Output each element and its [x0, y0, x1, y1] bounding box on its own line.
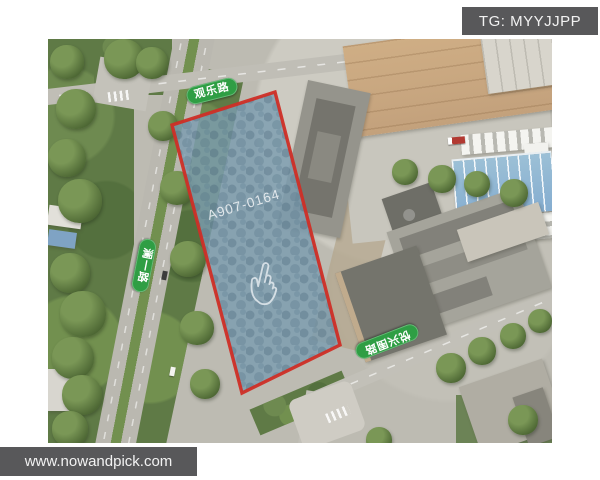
watermark-bar: www.nowandpick.com — [0, 447, 197, 476]
telegram-badge: TG: MYYJJPP — [462, 7, 598, 35]
telegram-badge-text: TG: MYYJJPP — [479, 13, 581, 30]
land-parcel[interactable] — [172, 92, 340, 393]
parcel-overlay: A907-0164 — [48, 39, 552, 443]
screenshot-frame: A907-0164 观乐路 澜一路 悦兴围路 TG: MYYJJPP www.n… — [0, 0, 600, 480]
watermark-text: www.nowandpick.com — [25, 453, 173, 470]
satellite-map[interactable]: A907-0164 观乐路 澜一路 悦兴围路 — [48, 39, 552, 443]
